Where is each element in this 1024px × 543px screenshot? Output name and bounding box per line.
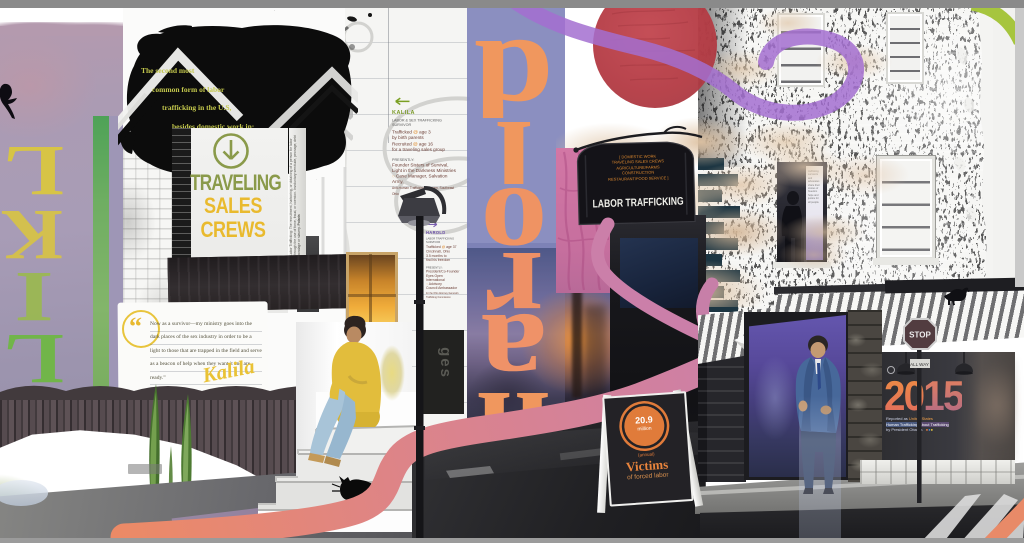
svg-text:STOP: STOP (909, 331, 931, 340)
svg-text:ALL WAY: ALL WAY (910, 362, 929, 367)
